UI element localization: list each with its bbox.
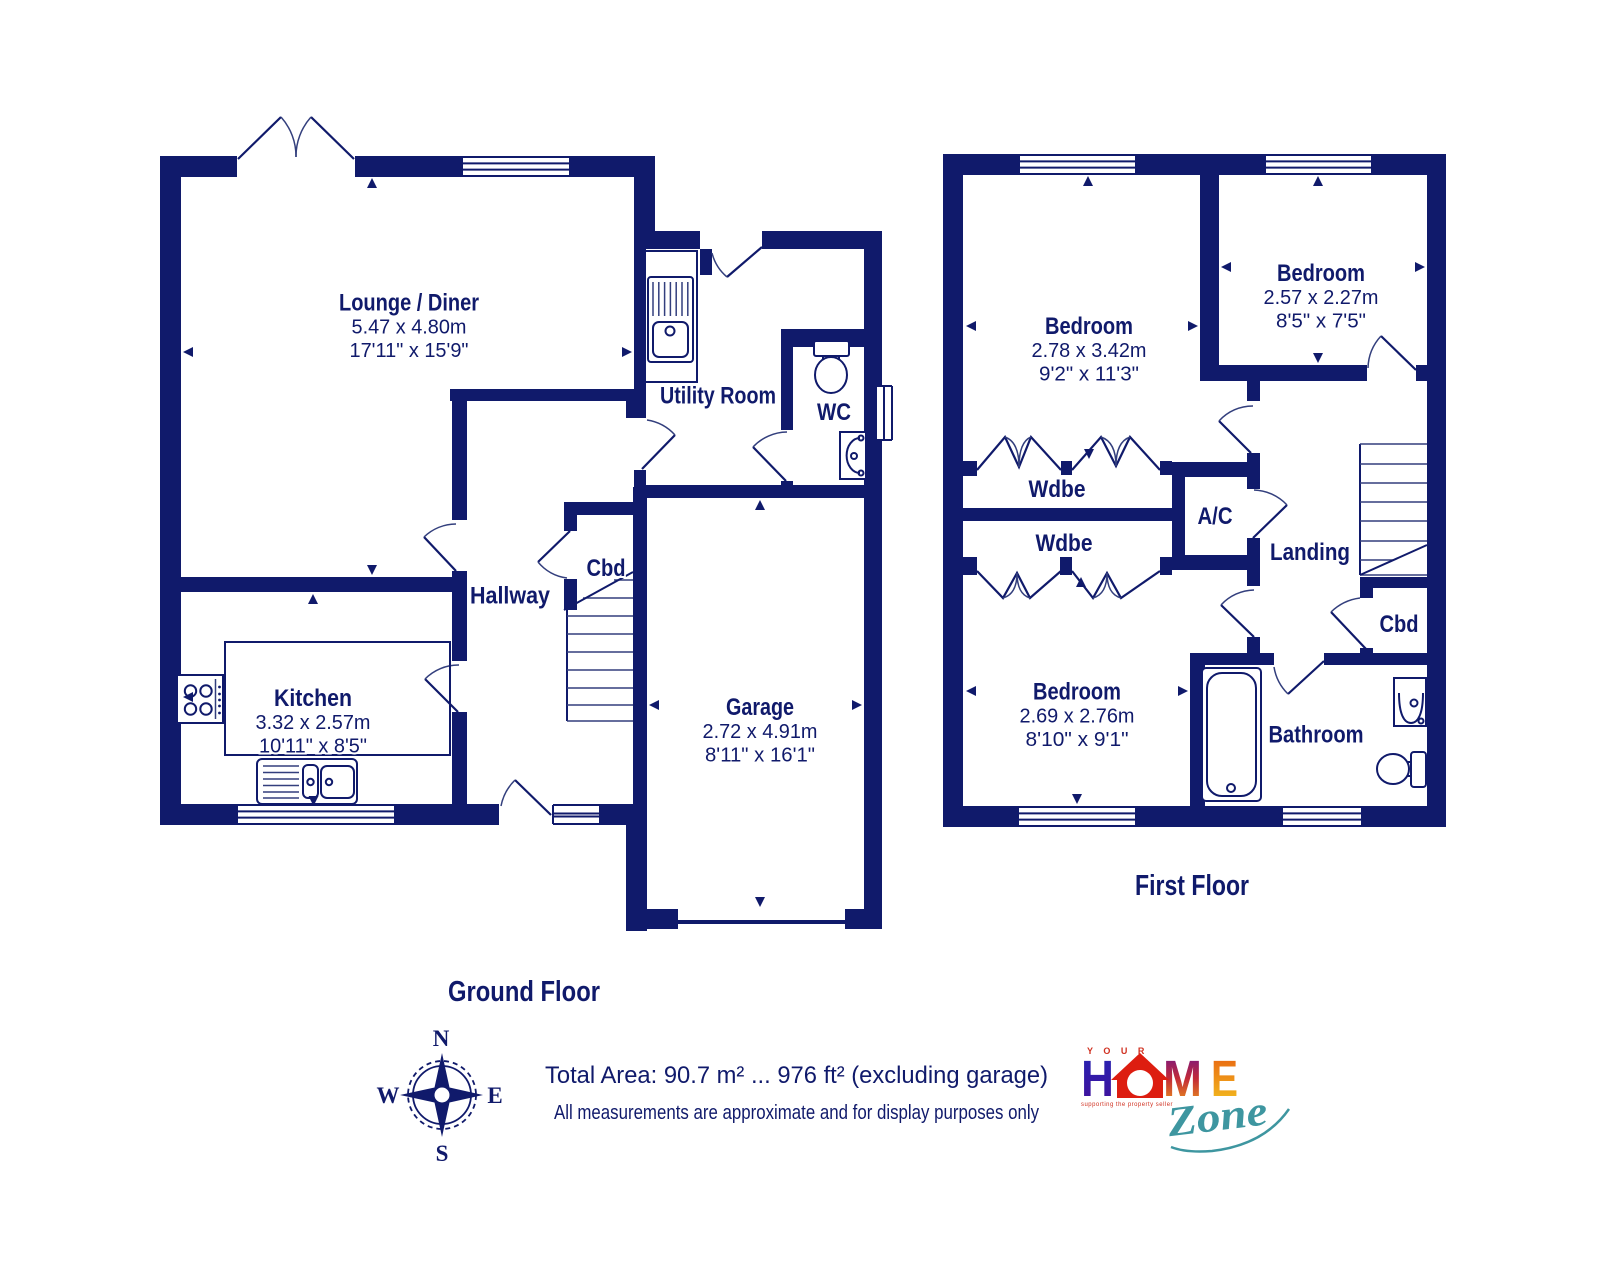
svg-text:Bedroom: Bedroom xyxy=(1045,313,1133,340)
svg-text:Wdbe: Wdbe xyxy=(1036,530,1093,557)
svg-text:5.47 x 4.80m: 5.47 x 4.80m xyxy=(352,317,467,339)
svg-text:N: N xyxy=(433,1026,450,1051)
svg-text:Kitchen: Kitchen xyxy=(274,685,352,712)
svg-text:Bedroom: Bedroom xyxy=(1277,260,1365,287)
svg-text:E: E xyxy=(487,1083,502,1108)
svg-text:Cbd: Cbd xyxy=(1380,611,1419,638)
svg-text:Total Area: 90.7 m² ... 976 ft: Total Area: 90.7 m² ... 976 ft² (excludi… xyxy=(545,1062,1048,1089)
svg-text:supporting the property seller: supporting the property seller xyxy=(1081,1102,1173,1108)
svg-text:3.32 x 2.57m: 3.32 x 2.57m xyxy=(256,712,371,734)
svg-text:8'5" x 7'5": 8'5" x 7'5" xyxy=(1276,311,1366,333)
svg-text:Bathroom: Bathroom xyxy=(1269,722,1364,749)
svg-text:2.69 x 2.76m: 2.69 x 2.76m xyxy=(1020,706,1135,728)
svg-text:Landing: Landing xyxy=(1270,539,1350,566)
svg-text:W: W xyxy=(377,1083,400,1108)
svg-text:Ground Floor: Ground Floor xyxy=(448,976,600,1008)
svg-text:Utility Room: Utility Room xyxy=(660,383,776,410)
svg-text:Bedroom: Bedroom xyxy=(1033,679,1121,706)
svg-text:Lounge / Diner: Lounge / Diner xyxy=(339,290,479,317)
svg-text:All measurements are approxima: All measurements are approximate and for… xyxy=(554,1102,1039,1124)
svg-text:8'11" x 16'1": 8'11" x 16'1" xyxy=(705,745,815,767)
svg-text:Wdbe: Wdbe xyxy=(1029,476,1086,503)
svg-text:2.57 x 2.27m: 2.57 x 2.27m xyxy=(1264,287,1379,309)
svg-text:WC: WC xyxy=(817,399,851,426)
svg-text:Cbd: Cbd xyxy=(587,555,626,582)
svg-text:H: H xyxy=(1081,1050,1114,1107)
svg-text:Hallway: Hallway xyxy=(470,583,551,610)
svg-text:8'10" x 9'1": 8'10" x 9'1" xyxy=(1026,729,1129,751)
svg-text:2.72 x 4.91m: 2.72 x 4.91m xyxy=(703,721,818,743)
svg-text:First Floor: First Floor xyxy=(1135,870,1249,902)
svg-text:2.78 x 3.42m: 2.78 x 3.42m xyxy=(1032,340,1147,362)
svg-text:10'11" x 8'5": 10'11" x 8'5" xyxy=(259,736,367,758)
svg-text:A/C: A/C xyxy=(1198,503,1233,530)
svg-text:Garage: Garage xyxy=(726,694,794,721)
svg-text:S: S xyxy=(436,1141,449,1166)
svg-text:9'2" x 11'3": 9'2" x 11'3" xyxy=(1039,364,1139,386)
svg-text:17'11" x 15'9": 17'11" x 15'9" xyxy=(350,340,469,362)
